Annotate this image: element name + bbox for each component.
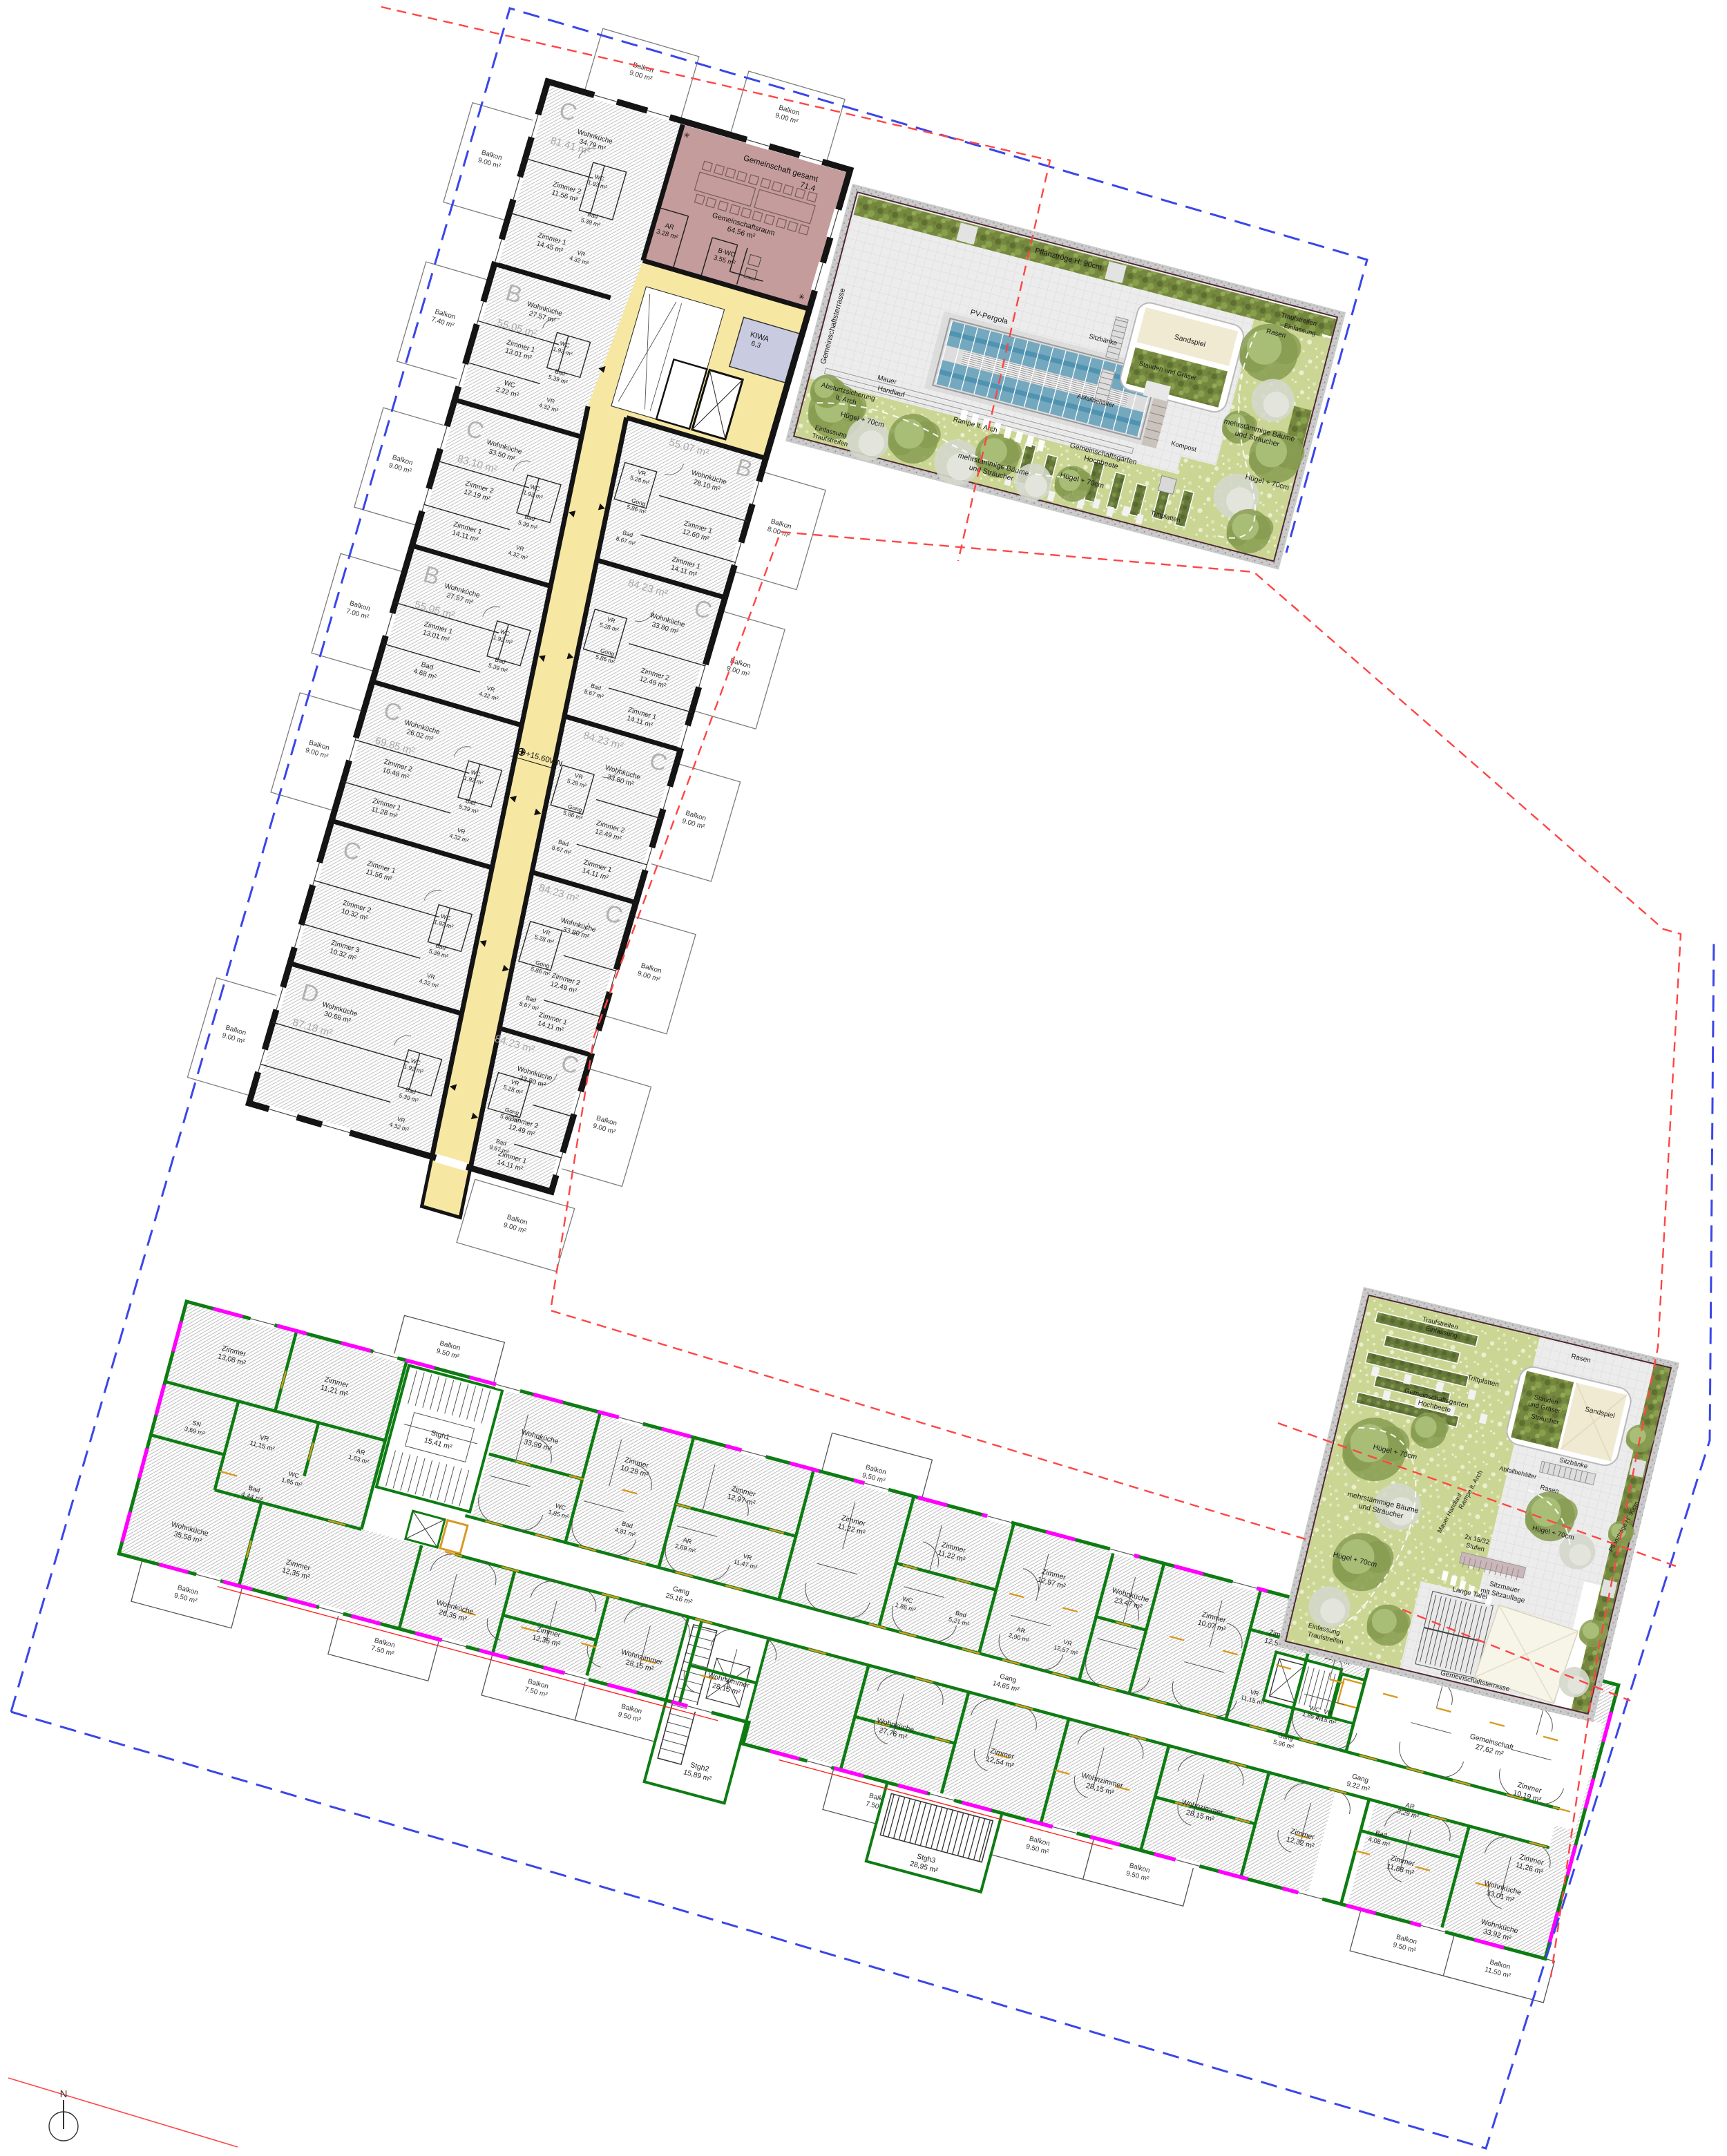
svg-text:N: N [60, 2088, 68, 2100]
